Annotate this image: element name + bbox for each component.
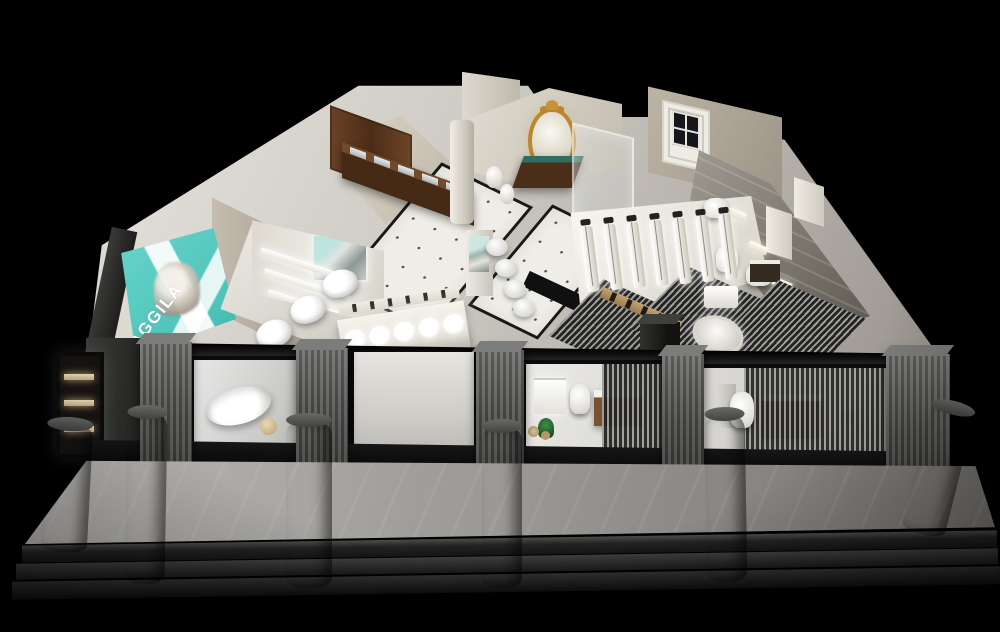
display-tower	[766, 206, 792, 260]
shower-head-icon	[580, 219, 591, 226]
wood-logs	[528, 426, 539, 437]
plinth-top	[636, 314, 684, 324]
shower-head-icon	[649, 213, 660, 220]
display-urn	[500, 184, 514, 204]
column-top-cap	[704, 407, 744, 422]
dark-vanity	[750, 260, 780, 282]
shower-hose	[654, 220, 662, 280]
shower-head-icon	[695, 209, 706, 216]
showroom-render: AGGILA	[0, 0, 1000, 632]
bottle	[370, 301, 375, 310]
shower-hose	[608, 224, 616, 284]
pillar-top-face	[472, 341, 529, 352]
towel-side-table	[260, 418, 277, 435]
pedestal-basin	[495, 259, 517, 277]
shower-hose	[723, 214, 731, 274]
pillar-top-face	[292, 339, 353, 350]
display-basin	[417, 316, 442, 339]
round-column	[286, 420, 332, 588]
bottle	[423, 293, 428, 302]
shower-hose	[631, 222, 639, 282]
vignette-slat-wall	[602, 364, 668, 456]
white-appliance	[704, 286, 738, 308]
display-urn	[486, 166, 502, 188]
shower-head-icon	[718, 207, 729, 214]
round-column	[41, 423, 94, 553]
shelf-item	[609, 292, 617, 302]
shower-head-icon	[672, 211, 683, 218]
shower-hose	[677, 218, 685, 278]
shower-head-icon	[626, 215, 637, 222]
pedestal-basin	[513, 299, 535, 317]
white-cabinet	[534, 378, 566, 414]
lit-shelf	[64, 400, 94, 406]
round-column	[705, 414, 748, 583]
round-column	[482, 426, 522, 588]
round-column	[125, 412, 168, 585]
column-top-cap	[931, 396, 977, 420]
shelf-item	[625, 299, 633, 309]
pillar-top-face	[658, 345, 709, 356]
mirror-crown-ornament	[546, 100, 558, 110]
display-basin	[442, 312, 467, 335]
pillar-top-face	[136, 333, 197, 344]
pillar-top-face	[882, 345, 955, 356]
bottle	[387, 298, 392, 307]
pedestal-basin	[486, 238, 508, 256]
shower-hose	[700, 216, 708, 276]
lit-shelf	[64, 374, 94, 380]
entrance-opening	[346, 352, 482, 456]
column-top-cap	[482, 419, 522, 433]
dark-pane-window	[672, 110, 700, 150]
green-plant	[538, 418, 554, 438]
bottle	[441, 290, 446, 299]
column-top-cap	[127, 405, 167, 420]
bottle	[352, 304, 357, 313]
column-top-cap	[286, 413, 332, 427]
display-basin	[392, 320, 417, 343]
shower-head-icon	[603, 217, 614, 224]
display-basin	[368, 324, 393, 347]
storefront-pillar	[662, 354, 704, 470]
poster	[469, 236, 489, 272]
vignette-toilet	[570, 384, 590, 414]
white-column	[450, 120, 474, 224]
bottle	[405, 295, 410, 304]
pedestal-basin	[504, 280, 526, 298]
shower-hose	[585, 226, 593, 286]
